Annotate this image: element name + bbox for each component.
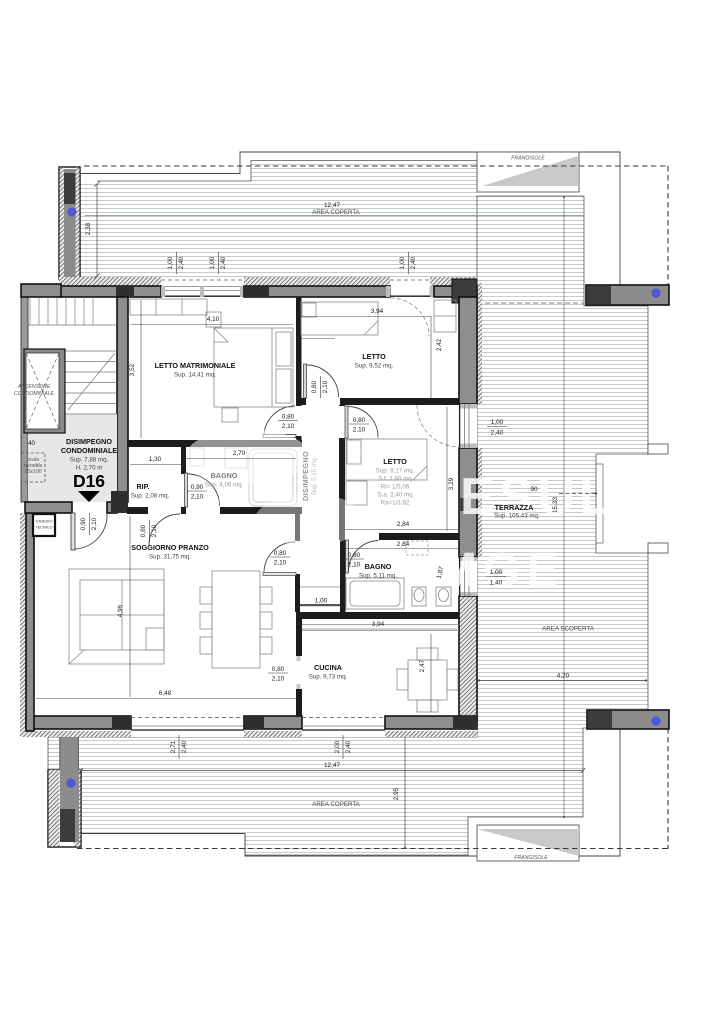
svg-text:1,40: 1,40 <box>490 580 503 587</box>
svg-text:Sup. 5,15 mq.: Sup. 5,15 mq. <box>311 456 318 495</box>
svg-text:Sup. 5,11 mq.: Sup. 5,11 mq. <box>359 573 397 580</box>
svg-text:2,10: 2,10 <box>282 423 295 430</box>
svg-text:2,71: 2,71 <box>170 740 177 753</box>
svg-text:TERRAZZA: TERRAZZA <box>495 503 534 512</box>
svg-text:CAVEDIO: CAVEDIO <box>36 520 53 524</box>
svg-text:AREA COPERTA: AREA COPERTA <box>312 801 360 808</box>
svg-text:Sup. 105,43 mq.: Sup. 105,43 mq. <box>494 513 540 520</box>
svg-text:2,10: 2,10 <box>191 494 204 501</box>
svg-text:15,33: 15,33 <box>552 497 559 513</box>
svg-text:LETTO: LETTO <box>383 457 407 466</box>
svg-text:2,40: 2,40 <box>181 740 188 753</box>
svg-text:0,80: 0,80 <box>140 524 147 537</box>
svg-text:40: 40 <box>28 440 36 447</box>
svg-text:2,10: 2,10 <box>272 676 285 683</box>
svg-text:DISIMPEGNO: DISIMPEGNO <box>301 451 310 501</box>
svg-text:0,80: 0,80 <box>348 552 361 559</box>
svg-text:SOGGIORNO PRANZO: SOGGIORNO PRANZO <box>131 543 209 552</box>
svg-text:4,96: 4,96 <box>117 604 124 617</box>
svg-text:2,40: 2,40 <box>410 256 417 269</box>
svg-text:1,00: 1,00 <box>491 419 504 426</box>
svg-text:4,20: 4,20 <box>557 673 570 680</box>
svg-text:3,94: 3,94 <box>372 621 385 628</box>
svg-text:2,40: 2,40 <box>491 430 504 437</box>
svg-text:0,80: 0,80 <box>274 550 287 557</box>
svg-text:TECNICO: TECNICO <box>35 526 52 530</box>
svg-text:2,84: 2,84 <box>397 521 410 528</box>
svg-text:12,47: 12,47 <box>324 762 340 769</box>
svg-text:Ra=1/3,82: Ra=1/3,82 <box>381 500 410 507</box>
svg-text:2,38: 2,38 <box>85 222 92 235</box>
svg-text:0,80: 0,80 <box>353 417 366 424</box>
svg-text:1,00: 1,00 <box>399 256 406 269</box>
svg-text:Ri= 1/5,06: Ri= 1/5,06 <box>381 484 410 491</box>
svg-text:2,70: 2,70 <box>233 450 246 457</box>
svg-text:2,10: 2,10 <box>151 524 158 537</box>
svg-text:Sup. 31,75 mq.: Sup. 31,75 mq. <box>149 554 191 561</box>
svg-text:Sup. 7,88 mq.: Sup. 7,88 mq. <box>70 457 109 464</box>
svg-text:12,47: 12,47 <box>324 202 340 209</box>
svg-text:Sup. 4,06 mq.: Sup. 4,06 mq. <box>205 482 244 489</box>
svg-text:DISIMPEGNO: DISIMPEGNO <box>66 437 112 446</box>
svg-text:90: 90 <box>530 486 538 493</box>
svg-text:RIP.: RIP. <box>136 482 149 491</box>
svg-text:CUCINA: CUCINA <box>314 663 342 672</box>
svg-text:2,10: 2,10 <box>348 562 361 569</box>
svg-text:AREA COPERTA: AREA COPERTA <box>312 209 360 216</box>
svg-text:0,80: 0,80 <box>272 666 285 673</box>
svg-text:0,80: 0,80 <box>311 380 318 393</box>
svg-text:0,80: 0,80 <box>282 414 295 421</box>
svg-text:CONDOMINIALE: CONDOMINIALE <box>61 446 118 455</box>
svg-text:2,10: 2,10 <box>322 380 329 393</box>
svg-text:S.a. 2,40 mq: S.a. 2,40 mq <box>377 492 413 499</box>
svg-text:1,00: 1,00 <box>167 256 174 269</box>
svg-text:2,00: 2,00 <box>334 740 341 753</box>
svg-text:0,90: 0,90 <box>191 484 204 491</box>
svg-text:2,40: 2,40 <box>220 256 227 269</box>
svg-text:3,29: 3,29 <box>448 477 455 490</box>
svg-text:2,10: 2,10 <box>274 560 287 567</box>
svg-text:LETTO: LETTO <box>362 352 386 361</box>
svg-text:1,00: 1,00 <box>490 569 503 576</box>
svg-text:D16: D16 <box>73 471 105 491</box>
svg-text:2,40: 2,40 <box>345 740 352 753</box>
svg-text:BAGNO: BAGNO <box>211 471 238 480</box>
svg-text:Sup. 14,41 mq.: Sup. 14,41 mq. <box>174 372 216 379</box>
svg-text:2,47: 2,47 <box>419 659 426 672</box>
svg-text:3,94: 3,94 <box>371 308 384 315</box>
svg-text:FRANGISOLE: FRANGISOLE <box>511 156 545 162</box>
svg-text:FRANGISOLE: FRANGISOLE <box>514 855 548 861</box>
svg-text:1,00: 1,00 <box>315 598 328 605</box>
svg-text:Sup. 9,52 mq.: Sup. 9,52 mq. <box>355 363 394 370</box>
svg-text:Sup. 9,17 mq.: Sup. 9,17 mq. <box>376 468 415 475</box>
svg-text:Sup. 2,08 mq.: Sup. 2,08 mq. <box>131 493 170 500</box>
svg-text:2,42: 2,42 <box>436 338 443 351</box>
svg-text:2,84: 2,84 <box>397 541 410 548</box>
svg-text:LETTO MATRIMONIALE: LETTO MATRIMONIALE <box>155 361 236 370</box>
svg-text:4,10: 4,10 <box>207 316 220 323</box>
svg-text:3,52: 3,52 <box>129 363 136 376</box>
svg-text:AREA SCOPERTA: AREA SCOPERTA <box>542 626 595 633</box>
svg-text:ASCENSORE: ASCENSORE <box>17 384 51 390</box>
svg-text:S.f. 1,80 mq: S.f. 1,80 mq <box>378 476 412 483</box>
svg-text:CONDOMINIALE: CONDOMINIALE <box>14 391 55 397</box>
svg-text:6,48: 6,48 <box>159 690 172 697</box>
svg-text:2,95: 2,95 <box>393 787 400 800</box>
svg-text:1,00: 1,00 <box>209 256 216 269</box>
svg-text:Sup. 9,73 mq.: Sup. 9,73 mq. <box>309 674 348 681</box>
svg-text:2,10: 2,10 <box>91 517 98 530</box>
svg-text:2,10: 2,10 <box>353 427 366 434</box>
svg-text:50x100: 50x100 <box>24 469 41 475</box>
svg-text:BAGNO: BAGNO <box>365 562 392 571</box>
svg-text:2,40: 2,40 <box>178 256 185 269</box>
svg-text:1,30: 1,30 <box>149 456 162 463</box>
svg-text:0,90: 0,90 <box>80 517 87 530</box>
